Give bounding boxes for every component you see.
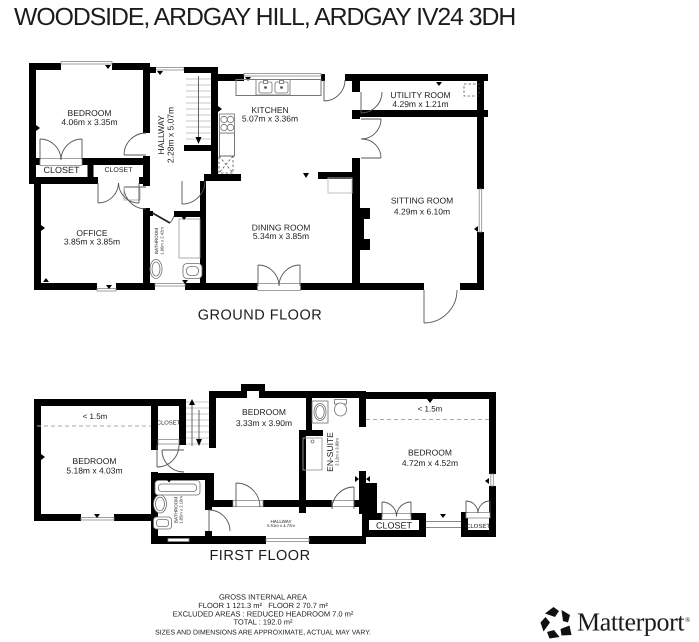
svg-text:2.12m x 3.80m: 2.12m x 3.80m bbox=[335, 438, 340, 466]
svg-text:1.85m x 2.10m: 1.85m x 2.10m bbox=[179, 496, 184, 524]
svg-text:4.06m x 3.35m: 4.06m x 3.35m bbox=[61, 117, 117, 127]
svg-text:5.18m x 4.03m: 5.18m x 4.03m bbox=[66, 466, 122, 476]
svg-text:CLOSET: CLOSET bbox=[43, 165, 80, 175]
svg-text:< 1.5m: < 1.5m bbox=[418, 405, 443, 414]
svg-text:SITTING ROOM: SITTING ROOM bbox=[391, 196, 453, 206]
svg-text:CLOSET: CLOSET bbox=[104, 167, 133, 174]
svg-text:< 1.5m: < 1.5m bbox=[83, 412, 108, 421]
svg-text:BEDROOM: BEDROOM bbox=[408, 448, 452, 458]
svg-text:5.34m x 3.85m: 5.34m x 3.85m bbox=[253, 231, 309, 241]
svg-text:EN-SUITE: EN-SUITE bbox=[325, 432, 335, 472]
svg-text:Matterport: Matterport bbox=[577, 608, 685, 637]
svg-text:SIZES AND DIMENSIONS ARE APPRO: SIZES AND DIMENSIONS ARE APPROXIMATE, AC… bbox=[155, 630, 371, 637]
svg-text:TOTAL : 192.0 m²: TOTAL : 192.0 m² bbox=[233, 618, 293, 627]
svg-text:WOODSIDE, ARDGAY HILL, ARDGAY: WOODSIDE, ARDGAY HILL, ARDGAY IV24 3DH bbox=[14, 4, 515, 31]
svg-text:2.28m x 5.07m: 2.28m x 5.07m bbox=[166, 107, 176, 163]
svg-text:GROUND FLOOR: GROUND FLOOR bbox=[198, 308, 322, 324]
svg-text:3.33m x 3.90m: 3.33m x 3.90m bbox=[236, 418, 292, 428]
svg-text:BATHROOM: BATHROOM bbox=[154, 228, 159, 254]
svg-text:4.29m x 6.10m: 4.29m x 6.10m bbox=[394, 207, 450, 217]
svg-text:BEDROOM: BEDROOM bbox=[73, 456, 117, 466]
svg-text:BEDROOM: BEDROOM bbox=[242, 407, 286, 417]
svg-text:CLOSET: CLOSET bbox=[466, 523, 490, 530]
svg-text:4.72m x 4.52m: 4.72m x 4.52m bbox=[402, 458, 458, 468]
svg-text:1.96m x 2.42m: 1.96m x 2.42m bbox=[160, 227, 165, 255]
svg-text:CLOSET: CLOSET bbox=[157, 420, 181, 427]
svg-text:5.51m x 4.72m: 5.51m x 4.72m bbox=[267, 523, 295, 528]
svg-text:CLOSET: CLOSET bbox=[376, 521, 413, 531]
svg-text:5.07m x 3.36m: 5.07m x 3.36m bbox=[242, 114, 298, 124]
svg-text:FIRST FLOOR: FIRST FLOOR bbox=[209, 548, 310, 564]
svg-text:®: ® bbox=[685, 616, 691, 624]
svg-text:HALLWAY: HALLWAY bbox=[156, 115, 166, 154]
svg-text:4.29m x 1.21m: 4.29m x 1.21m bbox=[392, 99, 448, 109]
svg-text:3.85m x 3.85m: 3.85m x 3.85m bbox=[64, 237, 120, 247]
